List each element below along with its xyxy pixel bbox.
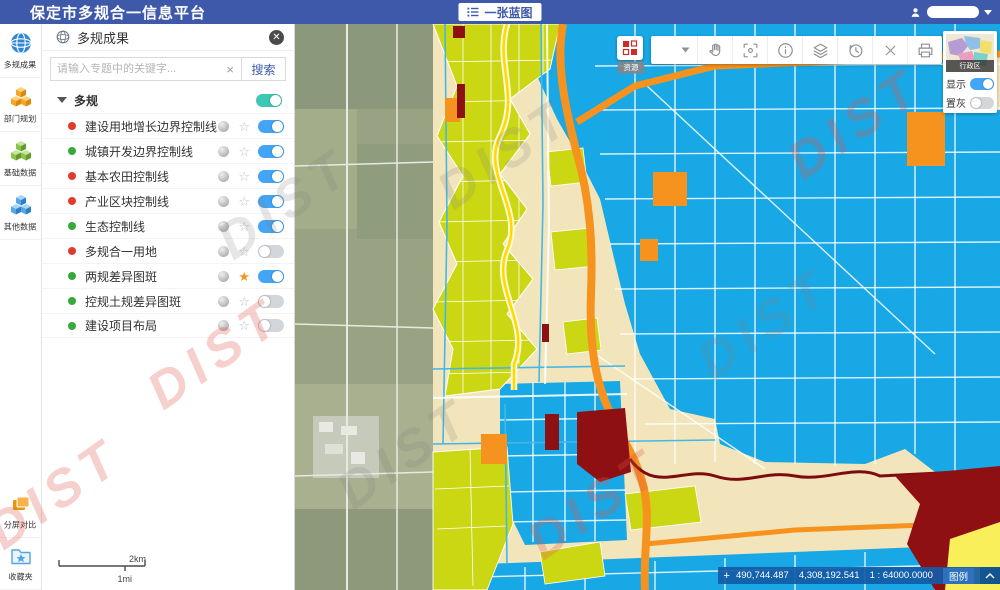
list-icon <box>467 7 479 17</box>
layer-toggle[interactable] <box>258 220 284 233</box>
coordinate-x: 490,744.487 <box>736 570 789 581</box>
layer-row[interactable]: 控规土规差异图斑 ☆ <box>42 288 294 313</box>
layer-row[interactable]: 两规差异图斑 ★ <box>42 263 294 288</box>
satellite-layer <box>295 24 433 590</box>
globe-icon <box>9 31 33 55</box>
rail-item-planning-results[interactable]: 多规成果 <box>0 24 41 78</box>
layer-toggle[interactable] <box>258 145 284 158</box>
user-caret-icon <box>984 10 992 15</box>
layer-sphere-icon[interactable] <box>218 146 229 157</box>
layer-toggle[interactable] <box>258 195 284 208</box>
rail-item-favorites[interactable]: 收藏夹 <box>0 538 41 590</box>
layer-row[interactable]: 生态控制线 ☆ <box>42 213 294 238</box>
overview-region-label: 行政区 <box>946 60 994 72</box>
layer-row[interactable]: 多规合一用地 ☆ <box>42 238 294 263</box>
star-icon[interactable]: ☆ <box>238 295 250 308</box>
legend-toggle-badge[interactable]: 图例 <box>943 568 974 584</box>
star-icon[interactable]: ☆ <box>238 245 250 258</box>
scale-km-label: 2km <box>129 554 146 564</box>
app-header: 保定市多规合一信息平台 一张蓝图 <box>0 0 1000 24</box>
layer-dot <box>68 197 76 205</box>
star-icon[interactable]: ☆ <box>238 195 250 208</box>
map-area[interactable]: 资源 <box>295 24 1000 590</box>
rail-spacer <box>0 240 41 486</box>
panel-header: 多规成果 ✕ <box>42 24 294 51</box>
layers-icon <box>811 41 830 60</box>
info-icon <box>776 41 795 60</box>
layer-toggle[interactable] <box>258 295 284 308</box>
panel-close-button[interactable]: ✕ <box>269 30 284 45</box>
user-icon <box>909 6 922 19</box>
page-title: 保定市多规合一信息平台 <box>30 2 206 23</box>
map-scale: 1 : 64000.0000 <box>870 570 933 581</box>
chevron-down-icon <box>681 47 690 53</box>
panel-title: 多规成果 <box>77 28 269 47</box>
basemap-select[interactable] <box>651 36 697 64</box>
coordinate-y: 4,308,192.541 <box>799 570 860 581</box>
legend-grid-icon <box>617 36 643 60</box>
zoom-extent-icon <box>741 41 760 60</box>
pan-hand-icon <box>706 41 725 60</box>
search-box: × 搜索 <box>50 57 286 81</box>
pan-button[interactable] <box>697 36 732 64</box>
overview-gray-label: 置灰 <box>946 95 966 110</box>
layer-toggle[interactable] <box>258 170 284 183</box>
star-icon[interactable]: ☆ <box>238 220 250 233</box>
chevron-up-icon <box>985 573 995 579</box>
cubes-green-icon <box>9 139 33 163</box>
rail-item-base-data[interactable]: 基础数据 <box>0 132 41 186</box>
layers-button[interactable] <box>802 36 837 64</box>
search-input[interactable] <box>51 63 219 75</box>
layer-sphere-icon[interactable] <box>218 121 229 132</box>
layer-toggle[interactable] <box>258 270 284 283</box>
rail-item-department-plans[interactable]: 部门规划 <box>0 78 41 132</box>
globe-gray-icon <box>56 30 70 44</box>
overview-show-toggle[interactable] <box>970 78 994 90</box>
layer-sphere-icon[interactable] <box>218 196 229 207</box>
blueprint-button[interactable]: 一张蓝图 <box>458 3 541 21</box>
identify-button[interactable] <box>767 36 802 64</box>
layer-toggle[interactable] <box>258 120 284 133</box>
layer-panel: 多规成果 ✕ × 搜索 多规 建设用地增长边界控制线 ☆ 城镇开发边界控制线 ☆… <box>42 24 295 590</box>
split-compare-icon <box>9 493 33 515</box>
layer-toggle[interactable] <box>258 245 284 258</box>
star-icon[interactable]: ☆ <box>238 120 250 133</box>
layer-row[interactable]: 建设用地增长边界控制线 ☆ <box>42 113 294 138</box>
cubes-orange-icon <box>9 85 33 109</box>
layer-row[interactable]: 城镇开发边界控制线 ☆ <box>42 138 294 163</box>
star-icon[interactable]: ☆ <box>238 145 250 158</box>
map-canvas[interactable] <box>295 24 1000 590</box>
favorites-folder-icon <box>9 545 33 567</box>
search-clear-icon[interactable]: × <box>219 62 241 77</box>
layer-dot <box>68 322 76 330</box>
search-button[interactable]: 搜索 <box>241 58 285 80</box>
layer-sphere-icon[interactable] <box>218 296 229 307</box>
caret-down-icon <box>57 97 67 103</box>
layer-dot <box>68 172 76 180</box>
blueprint-button-label: 一张蓝图 <box>484 4 532 21</box>
rail-item-split-compare[interactable]: 分屏对比 <box>0 486 41 538</box>
legend-button[interactable]: 资源 <box>617 36 645 74</box>
scale-mi-label: 1mi <box>117 574 132 584</box>
print-button[interactable] <box>907 36 942 64</box>
close-icon <box>882 42 899 59</box>
overview-gray-toggle[interactable] <box>970 97 994 109</box>
user-menu[interactable] <box>909 0 992 24</box>
rail-item-other-data[interactable]: 其他数据 <box>0 186 41 240</box>
layer-sphere-icon[interactable] <box>218 320 229 331</box>
overview-widget: 行政区 显示 置灰 <box>943 31 997 113</box>
group-toggle[interactable] <box>256 94 282 107</box>
layer-dot <box>68 147 76 155</box>
username-pill <box>927 6 979 18</box>
collapse-statusbar-button[interactable] <box>980 567 1000 584</box>
layer-dot <box>68 247 76 255</box>
layer-group-label: 多规 <box>74 92 256 109</box>
cubes-blue-icon <box>9 193 33 217</box>
scale-bar: 2km 1mi <box>57 556 152 574</box>
star-icon[interactable]: ★ <box>238 270 250 283</box>
layer-row[interactable]: 产业区块控制线 ☆ <box>42 188 294 213</box>
layer-sphere-icon[interactable] <box>218 171 229 182</box>
layer-dot <box>68 272 76 280</box>
clear-button[interactable] <box>872 36 907 64</box>
status-bar: + 490,744.487 4,308,192.541 1 : 64000.00… <box>718 567 1000 584</box>
crosshair-icon: + <box>724 570 730 582</box>
legend-button-label: 资源 <box>618 61 645 73</box>
star-icon[interactable]: ☆ <box>238 170 250 183</box>
layer-sphere-icon[interactable] <box>218 246 229 257</box>
layer-dot <box>68 222 76 230</box>
layer-group-row[interactable]: 多规 <box>42 87 294 113</box>
map-toolbar <box>651 36 942 64</box>
history-icon <box>846 41 865 60</box>
layer-toggle[interactable] <box>258 319 284 332</box>
star-icon[interactable]: ☆ <box>238 319 250 332</box>
layer-dot <box>68 297 76 305</box>
layer-sphere-icon[interactable] <box>218 221 229 232</box>
print-icon <box>916 41 935 60</box>
history-button[interactable] <box>837 36 872 64</box>
overview-map-thumbnail[interactable]: 行政区 <box>946 34 994 72</box>
overview-show-label: 显示 <box>946 76 966 91</box>
layer-dot <box>68 122 76 130</box>
layer-row[interactable]: 建设项目布局 ☆ <box>42 313 294 338</box>
layer-row[interactable]: 基本农田控制线 ☆ <box>42 163 294 188</box>
left-rail: 多规成果 部门规划 基础数据 其他数据 分屏对比 <box>0 24 42 590</box>
layer-sphere-icon[interactable] <box>218 271 229 282</box>
zoom-extent-button[interactable] <box>732 36 767 64</box>
